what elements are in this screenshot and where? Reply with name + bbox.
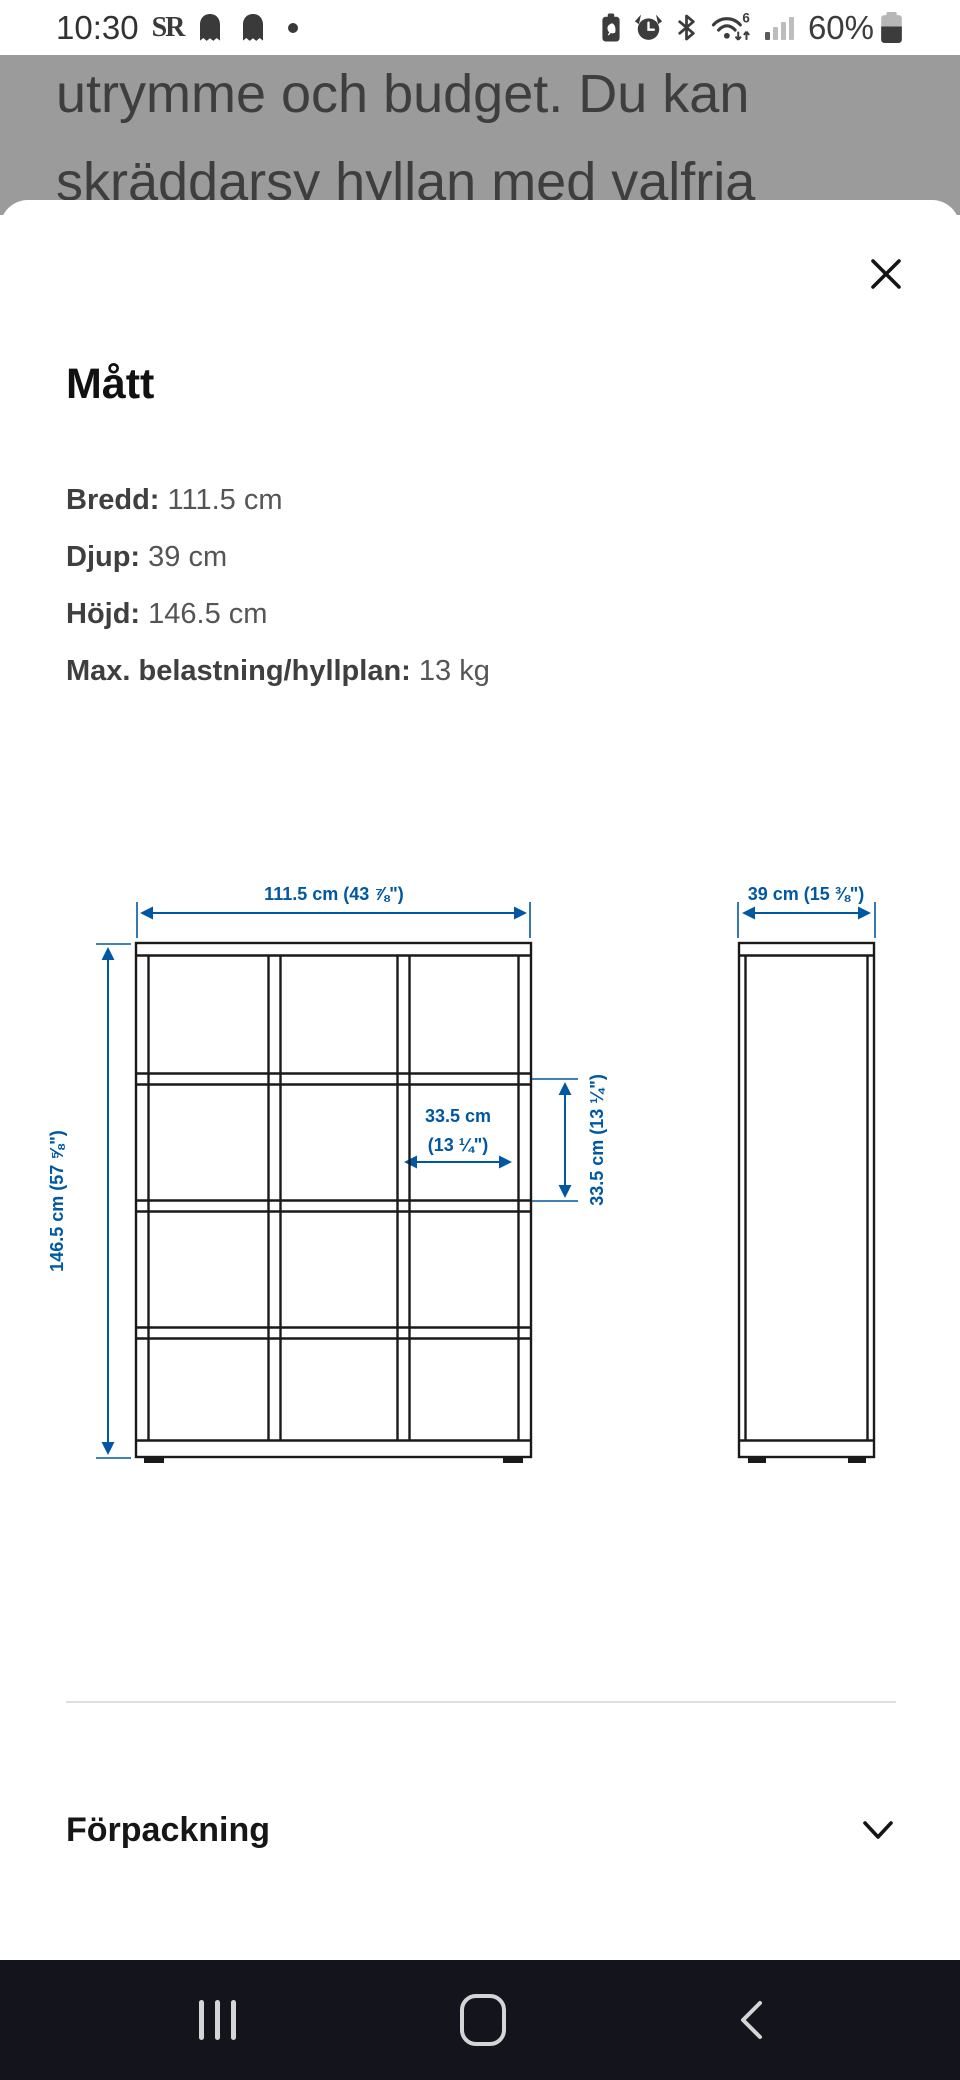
dimension-label: Djup: [66, 541, 140, 573]
depth-dimension-label: 39 cm (15 ⅜") [748, 884, 865, 904]
cell-width-dimension-label: (13 ¼") [428, 1135, 489, 1155]
forpackning-accordion[interactable]: Förpackning [0, 1795, 960, 1865]
dimension-value: 146.5 cm [148, 598, 267, 630]
sr-notification-icon: SR [152, 12, 184, 44]
dimension-value: 39 cm [148, 541, 227, 573]
snapchat-ghost-icon [194, 12, 226, 44]
dimension-label: Max. belastning/hyllplan: [66, 655, 411, 687]
section-label: Förpackning [66, 1811, 270, 1850]
alarm-icon [634, 13, 663, 42]
dimensions-modal: Mått Bredd: 111.5 cm Djup: 39 cm Höjd: 1… [0, 200, 960, 1960]
dimensions-drawing: 111.5 cm (43 ⅞") 39 cm (15 ⅜") 146.5 cm … [0, 860, 960, 1480]
close-button[interactable] [862, 250, 910, 298]
status-bar-right: 6 60% [588, 9, 903, 47]
chevron-down-icon [862, 1819, 894, 1841]
section-divider [66, 1701, 896, 1703]
dimension-row: Djup: 39 cm [66, 529, 490, 586]
extension-lines [96, 902, 875, 1458]
dimension-value: 111.5 cm [168, 484, 283, 516]
battery-icon [880, 12, 903, 44]
home-button[interactable] [460, 1994, 506, 2046]
battery-percent-text: 60% [808, 9, 874, 47]
dimension-label: Bredd: [66, 484, 159, 516]
dimension-row: Höjd: 146.5 cm [66, 586, 490, 643]
width-dimension-label: 111.5 cm (43 ⅞") [264, 884, 404, 904]
status-bar-left: 10:30 SR [56, 9, 298, 47]
side-view-shelf [739, 943, 874, 1457]
dimension-label: Höjd: [66, 598, 140, 630]
android-nav-bar [0, 1960, 960, 2080]
notification-dot-icon [288, 23, 298, 33]
battery-saver-icon [601, 13, 621, 42]
background-text-line: utrymme och budget. Du kan [56, 63, 749, 125]
recents-button[interactable] [190, 2000, 245, 2040]
dimension-arrows [108, 913, 869, 1453]
wifi6-icon: 6 [710, 12, 752, 43]
height-dimension-label: 146.5 cm (57 ⅝") [47, 1130, 67, 1272]
dimension-row: Max. belastning/hyllplan: 13 kg [66, 643, 490, 700]
status-bar: 10:30 SR 6 [0, 0, 960, 55]
close-icon [868, 256, 904, 292]
cell-height-dimension-label: 33.5 cm (13 ¼") [587, 1074, 607, 1206]
dimension-row: Bredd: 111.5 cm [66, 472, 490, 529]
snapchat-ghost-icon [237, 12, 269, 44]
dimension-value: 13 kg [419, 655, 490, 687]
svg-text:6: 6 [742, 12, 749, 25]
signal-icon [765, 15, 795, 40]
phone-screen: 10:30 SR 6 [0, 0, 960, 2080]
dimmed-page-background: utrymme och budget. Du kan skräddarsy hy… [0, 55, 960, 215]
cell-width-dimension-label: 33.5 cm [425, 1106, 491, 1126]
front-view-shelf [136, 943, 531, 1457]
modal-title: Mått [66, 360, 154, 409]
clock-text: 10:30 [56, 9, 139, 47]
dimension-list: Bredd: 111.5 cm Djup: 39 cm Höjd: 146.5 … [66, 472, 490, 700]
bluetooth-icon [676, 13, 697, 42]
back-button[interactable] [738, 1998, 768, 2042]
